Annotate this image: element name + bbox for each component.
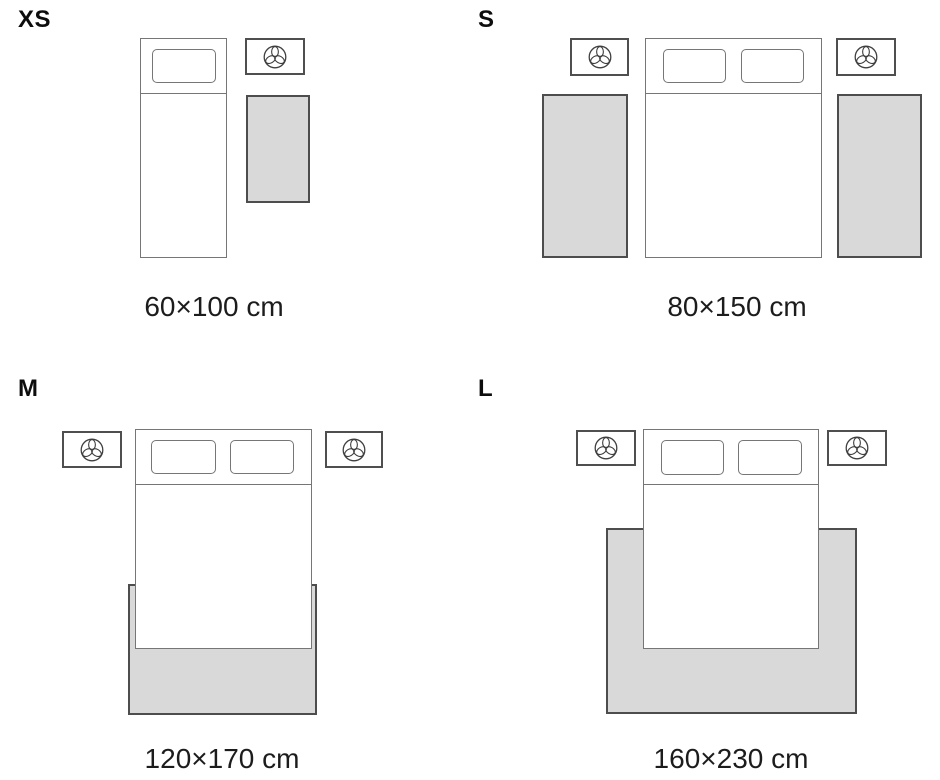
bed-single-xs bbox=[140, 38, 227, 258]
plant-icon bbox=[338, 434, 370, 466]
plant-icon bbox=[850, 41, 882, 73]
bed-double-s bbox=[645, 38, 822, 258]
dimension-label-s: 80×150 cm bbox=[607, 292, 867, 323]
plant-icon bbox=[590, 432, 622, 464]
size-label-xs: XS bbox=[18, 6, 51, 34]
rug-s-right bbox=[837, 94, 922, 258]
bed-headboard bbox=[141, 39, 226, 94]
nightstand-m-left bbox=[62, 431, 122, 468]
dimension-label-l: 160×230 cm bbox=[601, 744, 861, 775]
plant-icon bbox=[259, 41, 291, 73]
pillow bbox=[151, 440, 216, 474]
nightstand-xs bbox=[245, 38, 305, 75]
pillow bbox=[230, 440, 294, 474]
rug-s-left bbox=[542, 94, 628, 258]
plant-icon bbox=[841, 432, 873, 464]
nightstand-l-left bbox=[576, 430, 636, 466]
rug-size-guide: XS 60×100 cm S bbox=[0, 0, 940, 780]
nightstand-s-right bbox=[836, 38, 896, 76]
pillow bbox=[738, 440, 802, 475]
plant-icon bbox=[76, 434, 108, 466]
size-label-m: M bbox=[18, 375, 39, 403]
bed-headboard bbox=[136, 430, 311, 485]
pillow bbox=[661, 440, 724, 475]
bed-headboard bbox=[646, 39, 821, 94]
size-label-s: S bbox=[478, 6, 495, 34]
bed-headboard bbox=[644, 430, 818, 485]
pillow bbox=[152, 49, 216, 83]
dimension-label-xs: 60×100 cm bbox=[84, 292, 344, 323]
dimension-label-m: 120×170 cm bbox=[92, 744, 352, 775]
plant-icon bbox=[584, 41, 616, 73]
pillow bbox=[663, 49, 726, 83]
pillow bbox=[741, 49, 804, 83]
nightstand-m-right bbox=[325, 431, 383, 468]
nightstand-s-left bbox=[570, 38, 629, 76]
bed-double-l bbox=[643, 429, 819, 649]
size-label-l: L bbox=[478, 375, 493, 403]
nightstand-l-right bbox=[827, 430, 887, 466]
rug-xs bbox=[246, 95, 310, 203]
bed-double-m bbox=[135, 429, 312, 649]
